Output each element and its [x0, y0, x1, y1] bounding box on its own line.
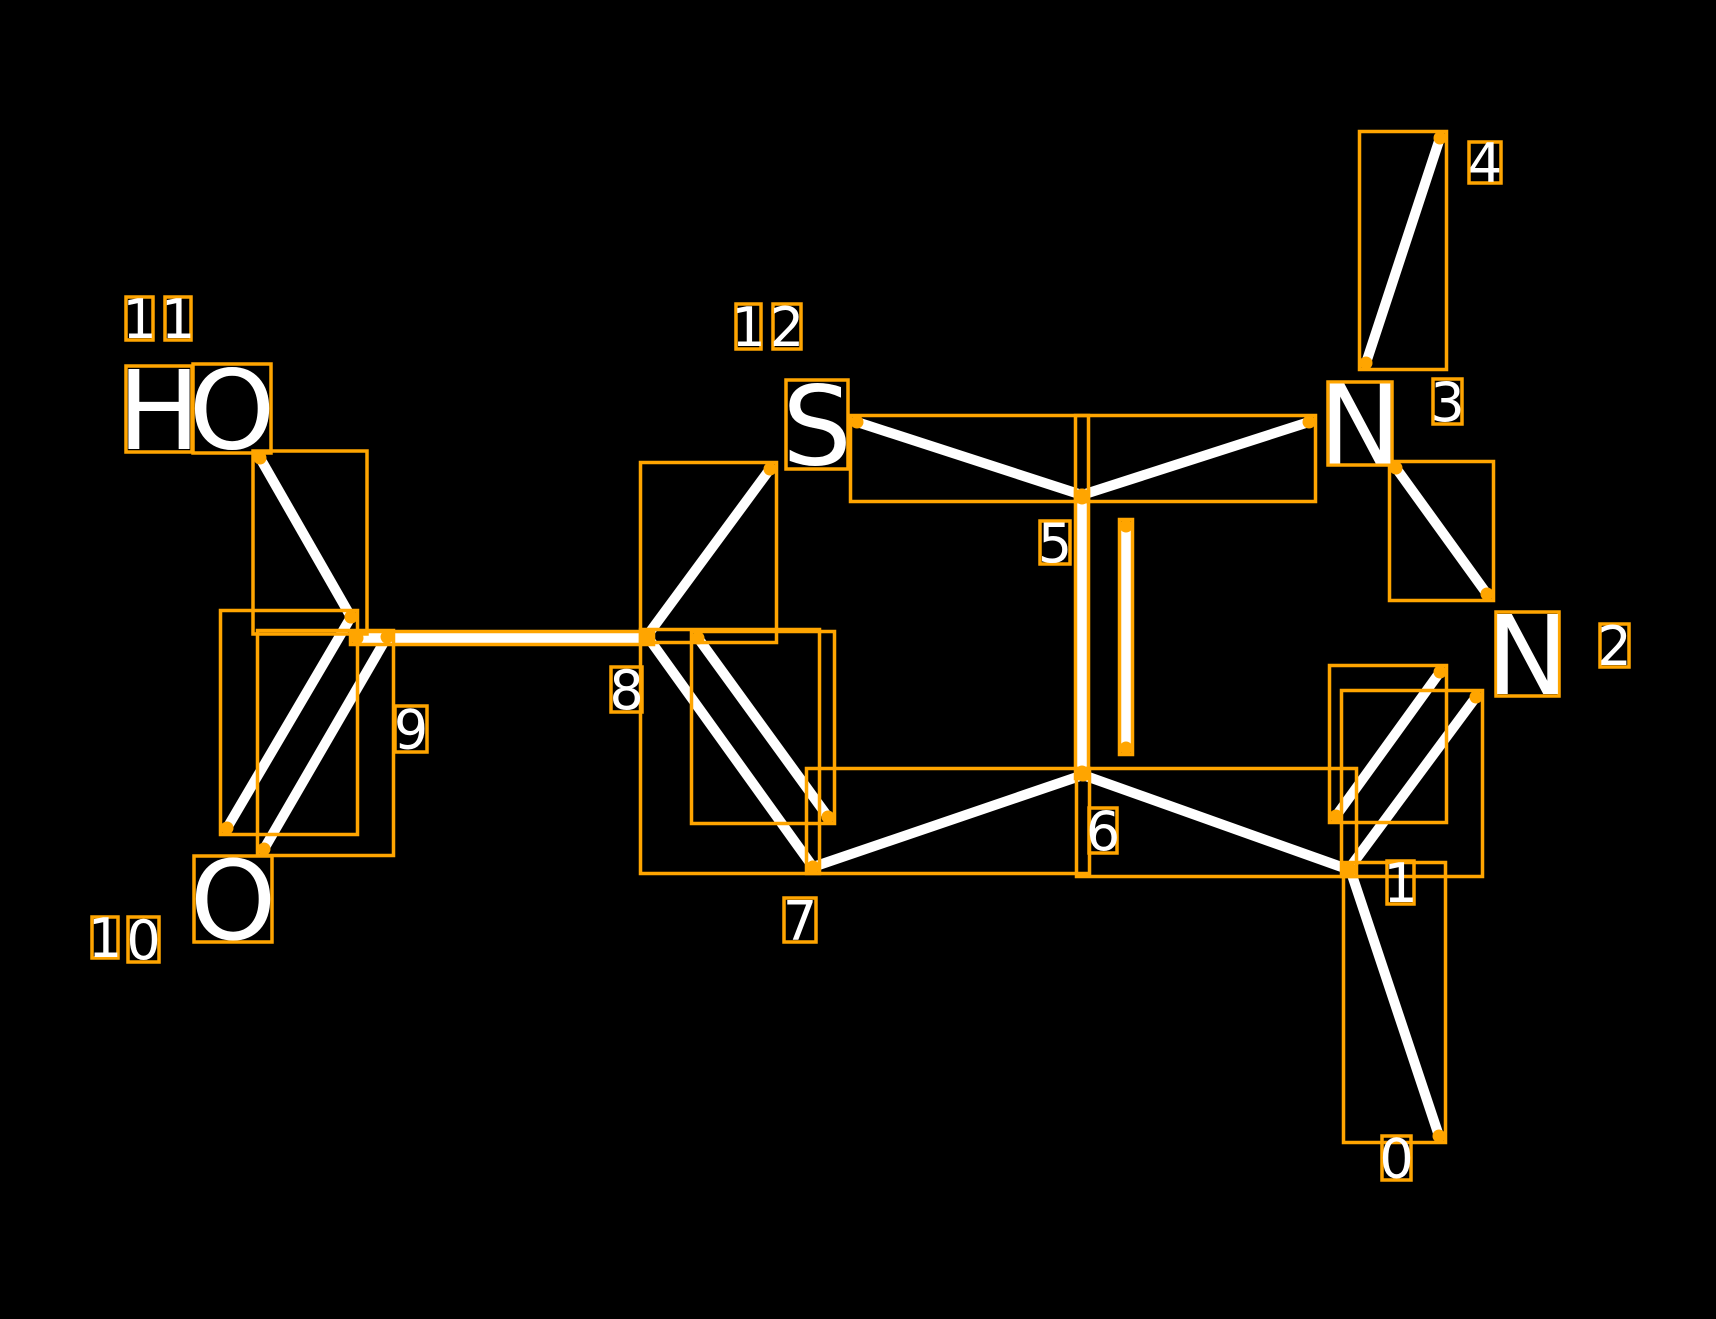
index-label-3: 3 [1430, 371, 1464, 434]
index-label-6-digit: 6 [1086, 800, 1120, 863]
bond-8-7-outer-endpoint-dot [641, 630, 654, 643]
bond-8-7-outer-line [647, 636, 813, 867]
bond-8-7-inner-endpoint-dot [692, 632, 705, 645]
bond-1-0-endpoint-dot [1344, 863, 1357, 876]
bond-3-4-endpoint-dot [1434, 132, 1447, 145]
index-label-12-digit: 2 [770, 296, 804, 359]
index-label-0: 0 [1379, 1128, 1413, 1191]
index-label-12: 12 [731, 296, 804, 359]
bond-6-1-line [1083, 775, 1350, 870]
index-label-4-digit: 4 [1468, 132, 1502, 195]
bond-6-1-endpoint-dot [1077, 769, 1090, 782]
index-label-5-digit: 5 [1038, 512, 1072, 575]
atom-2-nitrogen-glyph: N [1486, 592, 1568, 720]
bond-8-12-line [647, 469, 770, 636]
atom-12-sulfur-glyph: S [782, 363, 852, 491]
atom-3-nitrogen: N [1319, 362, 1401, 490]
bond-9-10-inner-endpoint-dot [381, 631, 394, 644]
bond-lines-layer [227, 138, 1487, 1136]
index-label-1: 1 [1383, 852, 1417, 915]
atom-10-oxygen: O [190, 837, 277, 965]
index-label-11: 11 [122, 288, 195, 351]
atom-3-nitrogen-glyph: N [1319, 362, 1401, 490]
atom-11-hydroxyl-glyph: O [189, 347, 276, 475]
bond-8-7-inner-endpoint-dot [822, 811, 835, 824]
bond-2-1-inner-line [1336, 672, 1440, 816]
index-label-8: 8 [609, 659, 643, 722]
index-label-10: 10 [88, 907, 161, 972]
index-label-1-digit: 1 [1383, 852, 1417, 915]
index-label-7-digit: 7 [783, 890, 817, 953]
index-label-7: 7 [783, 890, 817, 953]
atom-10-oxygen-glyph: O [190, 837, 277, 965]
bond-3-4-line [1366, 138, 1440, 363]
index-label-2-digit: 2 [1597, 615, 1631, 678]
index-label-11-digit: 1 [161, 288, 195, 351]
bond-9-8-endpoint-dot [351, 632, 364, 645]
bond-5-3-endpoint-dot [1076, 489, 1089, 502]
index-label-9: 9 [394, 699, 428, 762]
bond-12-5-endpoint-dot [851, 416, 864, 429]
index-label-9-digit: 9 [394, 699, 428, 762]
index-label-6: 6 [1086, 800, 1120, 863]
bond-2-1-inner-endpoint-dot [1330, 810, 1343, 823]
bond-2-1-outer-endpoint-dot [1470, 691, 1483, 704]
index-label-10-digit: 0 [126, 909, 160, 972]
index-label-5: 5 [1038, 512, 1072, 575]
index-label-3-digit: 3 [1430, 371, 1464, 434]
index-label-0-digit: 0 [1379, 1128, 1413, 1191]
bond-5-3-endpoint-dot [1303, 416, 1316, 429]
molecule-annotation-viewer: HOOSNN0123456789101112 [0, 0, 1716, 1319]
bond-1-0-endpoint-dot [1433, 1130, 1446, 1143]
bond-6-5-inner-endpoint-dot [1120, 742, 1133, 755]
index-label-8-digit: 8 [609, 659, 643, 722]
bond-7-6-endpoint-dot [807, 861, 820, 874]
bond-12-5-line [857, 422, 1082, 495]
bond-2-1-outer-line [1348, 697, 1476, 870]
bond-9-10-outer-endpoint-dot [221, 822, 234, 835]
bond-11-9-line [260, 458, 351, 617]
bond-6-5-inner-endpoint-dot [1120, 520, 1133, 533]
atom-2-nitrogen: N [1486, 592, 1568, 720]
bond-3-2-line [1396, 468, 1487, 594]
index-label-2: 2 [1597, 615, 1631, 678]
index-label-4: 4 [1468, 132, 1502, 195]
bond-7-6-line [813, 775, 1083, 867]
bond-8-12-endpoint-dot [764, 463, 777, 476]
index-label-12-digit: 1 [731, 296, 765, 359]
atom-11-hydroxyl: HO [118, 347, 276, 476]
index-label-11-digit: 1 [122, 288, 156, 351]
molecule-canvas: HOOSNN0123456789101112 [0, 0, 1716, 1319]
index-label-10-digit: 1 [88, 907, 122, 970]
bond-5-3-line [1082, 422, 1309, 495]
bond-9-10-outer-endpoint-dot [345, 611, 358, 624]
bond-2-1-inner-endpoint-dot [1434, 666, 1447, 679]
atom-12-sulfur: S [782, 363, 852, 491]
